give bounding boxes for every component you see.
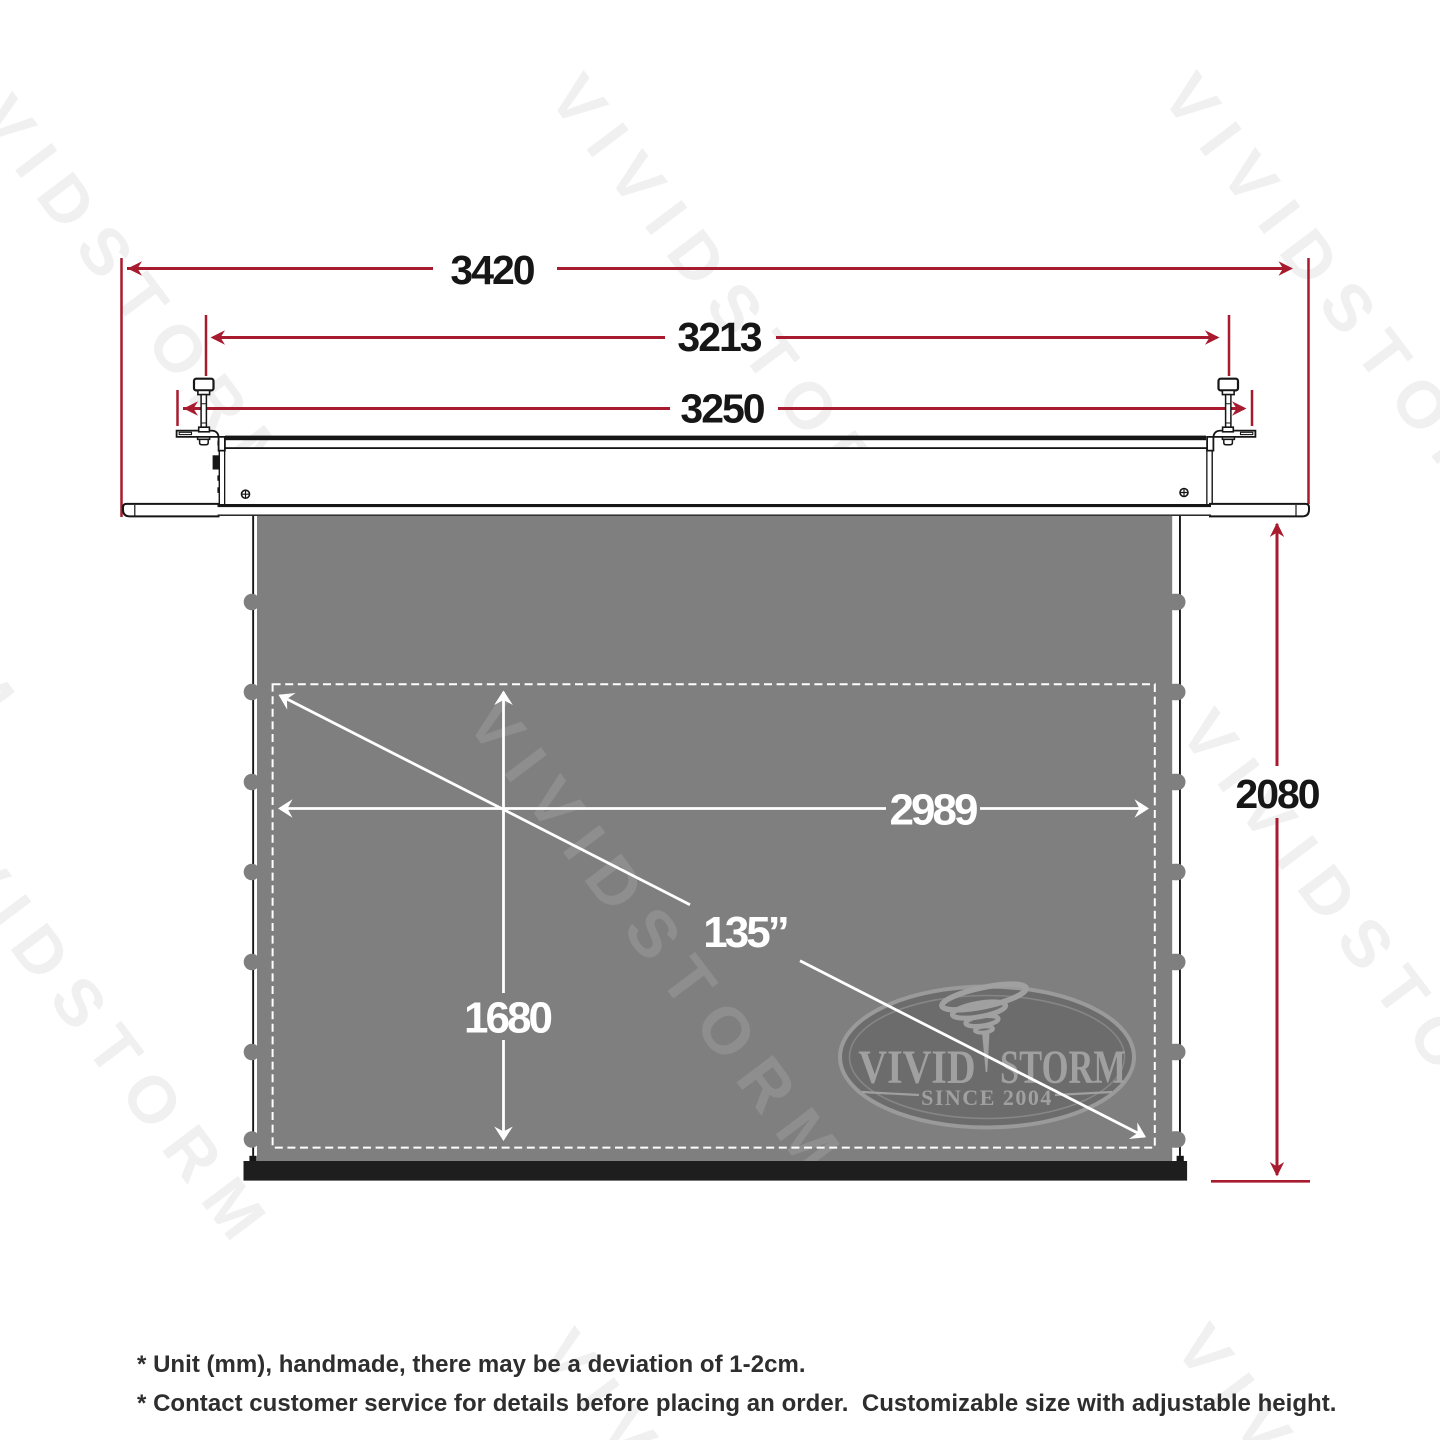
svg-text:SINCE 2004: SINCE 2004 [921,1085,1053,1110]
svg-text:* Contact customer service for: * Contact customer service for details b… [137,1390,1336,1417]
svg-text:3250: 3250 [680,386,764,432]
svg-text:* Unit (mm), handmade, there m: * Unit (mm), handmade, there may be a de… [137,1351,806,1378]
svg-text:1680: 1680 [464,994,551,1043]
svg-text:3420: 3420 [450,247,534,293]
svg-text:135”: 135” [703,908,786,957]
svg-text:3213: 3213 [677,314,761,360]
svg-text:2080: 2080 [1235,771,1319,817]
svg-text:2989: 2989 [890,786,977,835]
